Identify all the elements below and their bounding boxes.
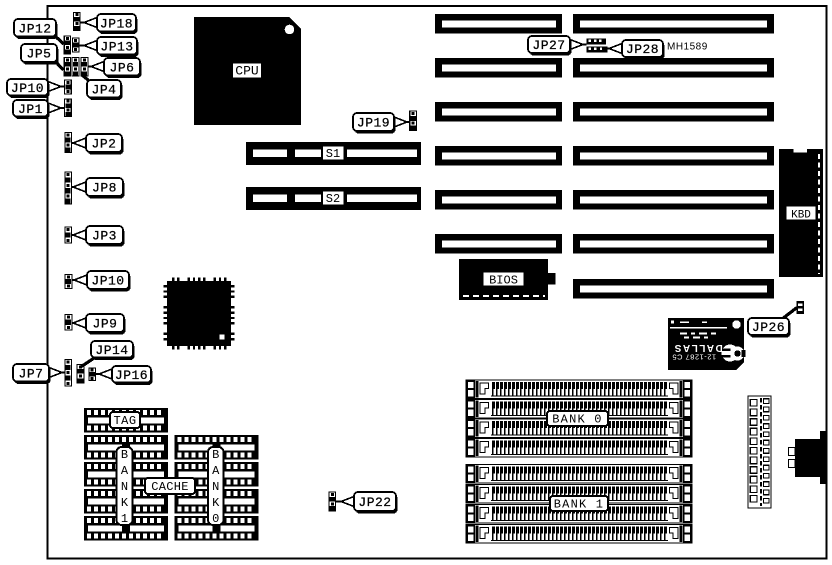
- svg-text:JP6: JP6: [110, 60, 135, 75]
- svg-text:N: N: [212, 480, 219, 494]
- svg-text:JP14: JP14: [95, 343, 128, 358]
- svg-text:A: A: [121, 464, 129, 478]
- svg-text:JP5: JP5: [27, 47, 52, 62]
- svg-text:JP2: JP2: [92, 137, 117, 152]
- svg-text:CACHE: CACHE: [151, 480, 189, 494]
- svg-text:JP26: JP26: [752, 320, 785, 335]
- svg-text:JP27: JP27: [532, 38, 565, 53]
- svg-text:JP16: JP16: [115, 368, 148, 383]
- svg-text:K: K: [212, 496, 220, 510]
- svg-text:KBD: KBD: [791, 210, 811, 222]
- svg-text:JP3: JP3: [92, 229, 117, 244]
- svg-text:CPU: CPU: [235, 64, 258, 79]
- svg-text:S2: S2: [326, 192, 340, 206]
- svg-text:DALLAS: DALLAS: [673, 342, 723, 353]
- svg-text:JP9: JP9: [93, 317, 118, 332]
- svg-text:JP13: JP13: [100, 39, 133, 54]
- svg-text:TAG: TAG: [113, 414, 136, 428]
- svg-text:JP19: JP19: [357, 116, 390, 131]
- svg-text:A: A: [212, 464, 220, 478]
- svg-text:JP28: JP28: [626, 42, 659, 57]
- svg-text:JP1: JP1: [18, 102, 43, 117]
- svg-text:JP10: JP10: [91, 274, 124, 289]
- svg-text:N: N: [121, 480, 128, 494]
- svg-text:K: K: [121, 496, 129, 510]
- svg-text:B: B: [121, 448, 128, 462]
- svg-text:JP7: JP7: [19, 366, 44, 381]
- svg-text:MH1589: MH1589: [667, 42, 708, 53]
- svg-text:1: 1: [121, 512, 128, 526]
- svg-text:BIOS: BIOS: [489, 274, 518, 288]
- svg-text:0: 0: [212, 512, 219, 526]
- svg-text:JP8: JP8: [92, 181, 117, 196]
- svg-text:S1: S1: [326, 147, 340, 161]
- svg-text:JP10: JP10: [11, 81, 44, 96]
- svg-text:JP4: JP4: [92, 82, 117, 97]
- svg-text:JP12: JP12: [18, 21, 51, 36]
- svg-text:JP22: JP22: [358, 495, 391, 510]
- svg-text:JP18: JP18: [100, 16, 133, 31]
- svg-text:BANK 1: BANK 1: [554, 498, 604, 512]
- svg-text:BANK 0: BANK 0: [552, 413, 602, 427]
- svg-text:B: B: [212, 448, 219, 462]
